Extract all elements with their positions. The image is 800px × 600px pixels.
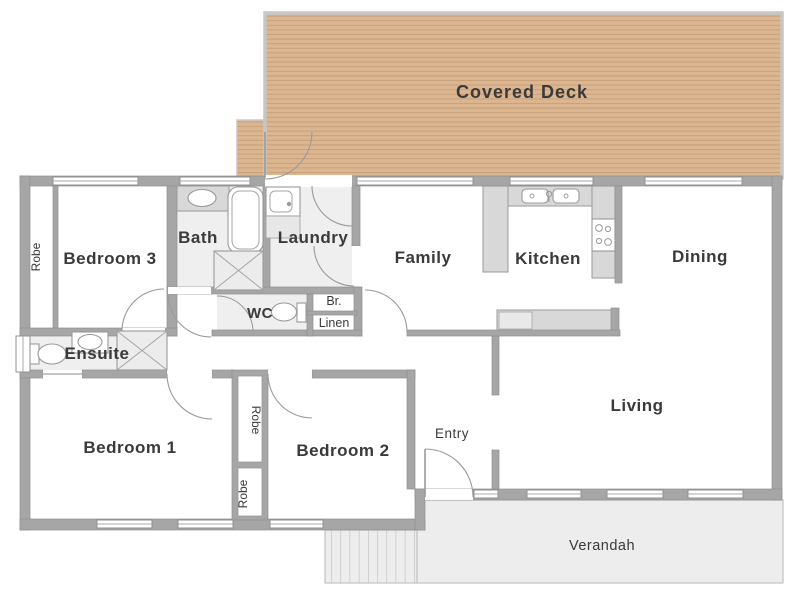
kitchen-label: Kitchen [515, 249, 581, 268]
bathtub [228, 187, 263, 253]
linen-label: Linen [319, 316, 350, 330]
opening-laundry [352, 246, 360, 286]
window-living-b [527, 490, 581, 498]
wall-right [772, 176, 782, 500]
window-family-top [357, 177, 473, 185]
window-living-a [474, 490, 498, 498]
kitchen-cabinet [483, 186, 508, 272]
wall-living-west-a [492, 336, 499, 395]
window-living-c [607, 490, 663, 498]
robe-bed3-label: Robe [29, 242, 43, 271]
wall-wc-bottom [212, 330, 362, 336]
bath-label: Bath [178, 228, 218, 247]
wall-connector [415, 489, 425, 530]
deck-landing-planks [237, 120, 265, 178]
covered-deck-label: Covered Deck [456, 82, 588, 102]
opening-bed2 [268, 370, 312, 378]
ensuite-label: Ensuite [65, 344, 130, 363]
wall-family-south [407, 330, 620, 336]
entry-label: Entry [435, 426, 469, 441]
wc-label: WC [247, 305, 273, 322]
bedroom1-label: Bedroom 1 [83, 438, 176, 457]
wall-laundry-east [352, 186, 360, 246]
window-bed1-a [97, 520, 152, 528]
dining-label: Dining [672, 247, 728, 266]
wall-corridor-south [212, 370, 234, 378]
opening-bed1 [167, 370, 212, 378]
bedroom2-label: Bedroom 2 [296, 441, 389, 460]
wall-br-linen-divider [307, 311, 357, 315]
robe-bottom-label: Robe [236, 479, 250, 508]
window-bed2 [270, 520, 323, 528]
window-bed3-top [53, 177, 138, 185]
ensuite-toilet [30, 344, 66, 364]
window-dining-top [645, 177, 742, 185]
laundry-faucet [287, 202, 291, 206]
bedroom3-label: Bedroom 3 [63, 249, 156, 268]
laundry-label: Laundry [278, 228, 349, 247]
bath-shower [214, 251, 263, 290]
window-bath-top [180, 177, 250, 185]
window-ensuite-left [16, 336, 30, 372]
family-label: Family [395, 248, 452, 267]
bench-end-wall [611, 308, 619, 333]
window-kitchen-top [510, 177, 593, 185]
verandah-label: Verandah [569, 538, 635, 554]
wall-bed2-right [407, 370, 415, 489]
opening-entry [425, 489, 473, 500]
robe-top-label: Robe [249, 406, 263, 435]
wc-toilet [272, 303, 307, 322]
window-bed1-b [178, 520, 233, 528]
stove-cooktop [592, 219, 615, 251]
opening-bath [168, 287, 211, 294]
living-label: Living [610, 396, 663, 415]
wall-living-west-b [492, 450, 499, 489]
wall-robe-bed3 [53, 186, 58, 328]
wall-ensuite-bottom-b [82, 370, 167, 378]
wall-kitchen-dining [615, 186, 622, 283]
verandah-steps-hatch [325, 530, 417, 583]
br-label: Br. [326, 294, 341, 308]
bath-sink [188, 190, 216, 207]
window-living-d [688, 490, 743, 498]
floor-plan: Covered Deck Bedroom 3 Bath Laundry Fami… [0, 0, 800, 600]
wall-bed2-top [312, 370, 415, 378]
dishwasher [499, 312, 532, 329]
